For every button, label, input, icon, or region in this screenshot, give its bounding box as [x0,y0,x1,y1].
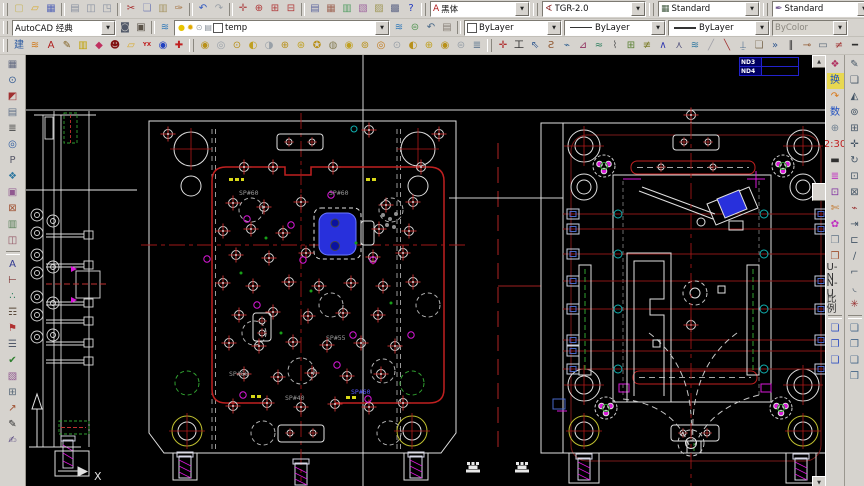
nd-coordinate-table: ND3 ND4 [739,57,799,76]
layer-on-icon[interactable]: ● [178,23,185,32]
nd4-label: ND4 [740,67,761,75]
dropdown-arrow-icon [833,21,847,35]
break-icon[interactable]: ⊏ [846,233,863,249]
color-control-combo[interactable]: ByLayer [464,20,562,36]
dropdown-arrow-icon[interactable] [857,2,864,16]
line-tool-6[interactable]: ⊿ [575,38,591,53]
ucs-icon: X [29,394,102,483]
lt-cells[interactable]: ▤ [4,105,21,121]
dropdown-arrow-icon[interactable] [375,21,389,35]
toolbar-grip[interactable] [533,3,538,16]
rt-swap[interactable]: 换 [827,73,844,89]
yellow-marks [229,178,376,399]
lt-check[interactable]: ✔ [4,353,21,369]
datum-symbol [515,462,529,473]
lt-split[interactable]: ◫ [4,233,21,249]
draworder-under-icon[interactable]: ❒ [846,369,863,385]
round-tool-5[interactable]: ◑ [261,38,277,53]
toolbar-grip[interactable] [421,3,426,16]
fillet2-icon[interactable]: ◟ [846,281,863,297]
rt-stack-1[interactable]: ❏ [827,321,844,337]
custom-mid-toolbar: ◉◎⊙◐◑⊕⊛✪◍◉⊚◎⊙◐⊕◉⊜≣ [197,38,485,53]
dim-style-value: TGR-2.0 [555,4,629,14]
dropdown-arrow-icon[interactable] [745,2,759,16]
separator [117,3,121,16]
round-tool-9[interactable]: ◍ [325,38,341,53]
color-swatch-icon [467,23,477,33]
rt-stack-2[interactable]: ❐ [827,337,844,353]
tool-palettes-icon[interactable]: ▥ [339,2,355,17]
tool-face[interactable]: ☻ [107,38,123,53]
quickcalc-icon[interactable]: ▩ [387,2,403,17]
line-tool-15[interactable]: ╲ [719,38,735,53]
line-tool-1[interactable]: ✛ [495,38,511,53]
move-icon[interactable]: ✛ [846,137,863,153]
scroll-down-icon[interactable]: ▼ [812,476,825,486]
round-tool-1[interactable]: ◉ [197,38,213,53]
left-section-view [26,111,137,468]
svg-text:SP#55: SP#55 [326,334,346,342]
separator [301,3,305,16]
lt-arrow[interactable]: ↗ [4,401,21,417]
line-tool-3[interactable]: ⇖ [527,38,543,53]
draworder-above-icon[interactable]: ❑ [846,353,863,369]
round-tool-16[interactable]: ◉ [437,38,453,53]
layer-name-value: temp [225,23,373,33]
layer-color-swatch [213,23,223,33]
autocad-window: ▢▱▦▤◫◳✂❏▥✑↶↷✛⊕⊞⊟▤▦▥▧▨▩? A 黑体 ∢ TGR-2.0 ▦… [0,0,864,486]
toolbar-grip[interactable] [649,3,654,16]
plot-icon[interactable]: ▤ [67,2,83,17]
line-tool-14[interactable]: ╱ [703,38,719,53]
layer-lock-icon[interactable]: ⊙ [196,23,203,32]
layer-previous-icon[interactable]: ↶ [423,20,439,35]
line-tool-23[interactable]: ━ [847,38,863,53]
chamfer-icon[interactable]: ∕ [846,249,863,265]
custom-left-toolbar: 建≋A✎▥◆☻▱YX◉✚ [11,38,187,53]
custom-toolbar-row: 建≋A✎▥◆☻▱YX◉✚ ◉◎⊙◐◑⊕⊛✪◍◉⊚◎⊙◐⊕◉⊜≣ ✛工⇖Ƨ⌁⊿≈⌇… [0,37,864,55]
rt-boxdot[interactable]: ⊡ [827,185,844,201]
tie-bar-fittings [567,209,825,374]
stretch-icon[interactable]: ⊠ [846,185,863,201]
separator [6,251,20,255]
lt-p[interactable]: P [4,153,21,169]
tool-help2[interactable]: ✚ [171,38,187,53]
datum-symbol [466,462,480,473]
pan-icon[interactable]: ✛ [235,2,251,17]
layer-thaw-icon[interactable]: ✹ [187,23,194,32]
color-control-value: ByLayer [479,23,545,33]
rt-scale-230[interactable]: 2:30 [827,137,844,153]
water-lines [563,214,825,369]
dropdown-arrow-icon[interactable] [755,21,769,35]
svg-text:SP#60: SP#60 [351,388,371,396]
tool-text[interactable]: A [43,38,59,53]
toolbar-grip[interactable] [3,39,8,52]
layer-combo[interactable]: ●✹⊙▤ temp [174,20,390,36]
line-tool-12[interactable]: ⋏ [671,38,687,53]
line-tool-2[interactable]: 工 [511,38,527,53]
lt-dots[interactable]: ∴ [4,289,21,305]
lt-flag[interactable]: ⚑ [4,321,21,337]
workspace-settings-icon[interactable]: ◙ [117,20,133,35]
paste-icon[interactable]: ▥ [155,2,171,17]
svg-text:SP#40: SP#40 [285,394,305,402]
lt-trigram[interactable]: ☶ [4,305,21,321]
line-tool-9[interactable]: ⊞ [623,38,639,53]
offset-icon[interactable]: ⊚ [846,105,863,121]
separator [189,3,193,16]
layer-state-icons: ●✹⊙▤ [177,23,213,32]
round-tool-4[interactable]: ◐ [245,38,261,53]
fillet-icon[interactable]: ⌐ [846,265,863,281]
tool-about[interactable]: ◉ [155,38,171,53]
round-tool-2[interactable]: ◎ [213,38,229,53]
lt-boxgrid[interactable]: ▣ [4,185,21,201]
round-tool-7[interactable]: ⊛ [293,38,309,53]
lt-plus[interactable]: ⊞ [4,385,21,401]
toolbar-grip[interactable] [763,3,768,16]
round-tool-6[interactable]: ⊕ [277,38,293,53]
lt-grid[interactable]: ▦ [4,57,21,73]
linetype-control-combo[interactable]: ByLayer [564,20,666,36]
rt-target[interactable]: ⊕ [827,121,844,137]
standard-toolbar: ▢▱▦▤◫◳✂❏▥✑↶↷✛⊕⊞⊟▤▦▥▧▨▩? [11,2,419,17]
round-tool-13[interactable]: ⊙ [389,38,405,53]
round-tool-11[interactable]: ⊚ [357,38,373,53]
scrollbar-thumb[interactable] [812,183,825,201]
qnew-icon[interactable]: ▢ [11,2,27,17]
lineweight-control-value: ByLayer [699,23,753,33]
section-centerline [449,143,563,473]
blue-insert [314,208,361,259]
draworder-front-icon[interactable]: ❏ [846,321,863,337]
tool-folder[interactable]: ▱ [123,38,139,53]
toolbar-grip[interactable] [487,39,492,52]
lt-text[interactable]: A [4,257,21,273]
text-style-combo[interactable]: A 黑体 [430,1,530,17]
separator [229,3,233,16]
lt-zoom[interactable]: ⊙ [4,73,21,89]
lt-sign[interactable]: ✍ [4,433,21,449]
zoom-window-icon[interactable]: ⊞ [267,2,283,17]
line-tool-19[interactable]: ∥ [783,38,799,53]
lt-lines[interactable]: ☰ [4,337,21,353]
x-axis-label: X [94,470,102,483]
svg-text:SP#60: SP#60 [229,370,249,378]
custom-lines-toolbar: ✛工⇖Ƨ⌁⊿≈⌇⊞≢∧⋏≋╱╲⍊❏»∥⊸▭≠━╪ [495,38,864,53]
text-style-value: 黑体 [441,3,513,15]
explode-icon[interactable]: ✳ [846,297,863,313]
line-tool-8[interactable]: ⌇ [607,38,623,53]
drawing-canvas[interactable]: X [26,55,825,486]
dropdown-arrow-icon[interactable] [547,21,561,35]
dropdown-arrow-icon[interactable] [631,2,645,16]
nd3-cell [761,58,798,66]
rotate-icon[interactable]: ↻ [846,153,863,169]
cut-icon[interactable]: ✂ [123,2,139,17]
svg-text:SP#60: SP#60 [239,189,259,197]
line-tool-16[interactable]: ⍊ [735,38,751,53]
lineweight-sample-icon [674,27,696,29]
lt-bars[interactable]: ▥ [4,217,21,233]
draworder-back-icon[interactable]: ❐ [846,337,863,353]
tool-jian[interactable]: 建 [11,38,27,53]
mleader-style-icon: ✒ [775,4,783,14]
crosshair-cursor[interactable] [26,55,825,486]
undo-icon[interactable]: ↶ [195,2,211,17]
separator [457,21,461,34]
table-style-value: Standard [672,4,743,14]
properties-icon[interactable]: ▤ [307,2,323,17]
line-tool-22[interactable]: ≠ [831,38,847,53]
designcenter-icon[interactable]: ▦ [323,2,339,17]
scroll-up-icon[interactable]: ▲ [812,55,825,68]
round-tool-15[interactable]: ⊕ [421,38,437,53]
line-tool-4[interactable]: Ƨ [543,38,559,53]
lt-hatch[interactable]: ▧ [4,369,21,385]
rt-snip[interactable]: ✄ [827,201,844,217]
round-tool-8[interactable]: ✪ [309,38,325,53]
layer-tools: ≋⊜↶▤ [391,20,455,35]
trim-icon[interactable]: ⌁ [846,201,863,217]
separator [61,3,65,16]
round-tool-3[interactable]: ⊙ [229,38,245,53]
linetype-sample-icon [570,27,592,28]
tool-diamond[interactable]: ◆ [91,38,107,53]
bolt-pattern [216,195,421,415]
tool-yx[interactable]: YX [139,38,155,53]
rt-curve-arrow[interactable]: ↷ [827,89,844,105]
linetype-control-value: ByLayer [595,23,649,33]
erase-icon[interactable]: ✎ [846,57,863,73]
canvas-vertical-scrollbar[interactable]: ▲ ▼ [812,55,825,486]
center-plate-view: SP#60 SP#60 SP#60 SP#55 SP#40 SP#60 [141,113,467,485]
dropdown-arrow-icon[interactable] [651,21,665,35]
separator [151,21,155,34]
rt-mark[interactable]: ❖ [827,57,844,73]
toolbar-grip[interactable] [189,39,194,52]
lt-ring[interactable]: ◎ [4,137,21,153]
help-icon[interactable]: ? [403,2,419,17]
copy-icon[interactable]: ❏ [139,2,155,17]
lt-red-block[interactable]: ◩ [4,89,21,105]
dropdown-arrow-icon[interactable] [101,21,115,35]
lineweight-control-combo[interactable]: ByLayer [668,20,770,36]
scale-icon[interactable]: ⊡ [846,169,863,185]
line-tool-13[interactable]: ≋ [687,38,703,53]
line-tool-18[interactable]: » [767,38,783,53]
mirror-icon[interactable]: ◭ [846,89,863,105]
line-tool-11[interactable]: ∧ [655,38,671,53]
round-tool-17[interactable]: ⊜ [453,38,469,53]
svg-text:SP#60: SP#60 [329,189,349,197]
plotstyle-control-combo: ByColor [772,20,848,36]
nd3-label: ND3 [740,58,761,66]
rt-scale-cn[interactable]: 比例 [827,297,844,313]
save-icon[interactable]: ▦ [43,2,59,17]
redo-icon[interactable]: ↷ [211,2,227,17]
copy-object-icon[interactable]: ❏ [846,73,863,89]
plotstyle-control-value: ByColor [775,23,831,33]
plot-preview-icon[interactable]: ◫ [83,2,99,17]
line-tool-17[interactable]: ❏ [751,38,767,53]
round-tool-14[interactable]: ◐ [405,38,421,53]
layer-properties-icon[interactable]: ≋ [391,20,407,35]
mleader-style-value: Standard [785,4,855,14]
layer-properties-manager-icon[interactable]: ≋ [157,20,173,35]
table-style-combo[interactable]: ▦ Standard [658,1,760,17]
standard-toolbar-row: ▢▱▦▤◫◳✂❏▥✑↶↷✛⊕⊞⊟▤▦▥▧▨▩? A 黑体 ∢ TGR-2.0 ▦… [0,0,864,19]
round-tool-12[interactable]: ◎ [373,38,389,53]
lt-layers[interactable]: ❖ [4,169,21,185]
make-layer-current-icon[interactable]: ⊜ [407,20,423,35]
right-plate-view [541,108,825,486]
layer-states-icon[interactable]: ▤ [439,20,455,35]
line-tool-7[interactable]: ≈ [591,38,607,53]
line-tool-20[interactable]: ⊸ [799,38,815,53]
sheetset-manager-icon[interactable]: ▧ [355,2,371,17]
toolbar-grip[interactable] [3,21,8,34]
line-tool-21[interactable]: ▭ [815,38,831,53]
layers-toolbar-row: AutoCAD 经典 ◙▣ ≋ ●✹⊙▤ temp ≋⊜↶▤ ByLayer B… [0,19,864,37]
nd4-cell [761,67,798,75]
text-style-icon: A [433,4,439,14]
dropdown-arrow-icon[interactable] [515,2,529,16]
line-tool-10[interactable]: ≢ [639,38,655,53]
lt-xbox[interactable]: ⊠ [4,201,21,217]
toolbar-grip[interactable] [3,3,8,16]
left-toolbar: ▦⊙◩▤≣◎P❖▣⊠▥◫A⊢∴☶⚑☰✔▧⊞↗✎✍ [0,55,26,486]
rt-stack-3[interactable]: ❑ [827,353,844,369]
tool-waves[interactable]: ≋ [27,38,43,53]
main-area: ▦⊙◩▤≣◎P❖▣⊠▥◫A⊢∴☶⚑☰✔▧⊞↗✎✍ [0,55,864,486]
line-tool-5[interactable]: ⌁ [559,38,575,53]
mleader-style-combo[interactable]: ✒ Standard [772,1,864,17]
open-icon[interactable]: ▱ [27,2,43,17]
match-properties-icon[interactable]: ✑ [171,2,187,17]
tool-pencil[interactable]: ✎ [59,38,75,53]
array-icon[interactable]: ⊞ [846,121,863,137]
zoom-previous-icon[interactable]: ⊟ [283,2,299,17]
separator [848,315,862,319]
workspace-combo[interactable]: AutoCAD 经典 [12,20,116,36]
cad-drawing: X [26,55,825,486]
markup-set-manager-icon[interactable]: ▨ [371,2,387,17]
workspace-save-icon[interactable]: ▣ [133,20,149,35]
table-style-icon: ▦ [661,4,670,14]
tool-colorbars[interactable]: ▥ [75,38,91,53]
right-custom-toolbar: ❖换↷数⊕2:30▬≣⊡✄✿❒❒U-NN-U比例❏❐❑ [825,55,844,486]
rt-count[interactable]: 数 [827,105,844,121]
workspace-value: AutoCAD 经典 [15,22,99,34]
separator [828,315,842,319]
round-tool-18[interactable]: ≣ [469,38,485,53]
lt-dim[interactable]: ⊢ [4,273,21,289]
rt-copyshape[interactable]: ❒ [827,233,844,249]
slide-unit [639,187,758,230]
lt-pen[interactable]: ✎ [4,417,21,433]
modify-toolbar: ✎❏◭⊚⊞✛↻⊡⊠⌁⇥⊏∕⌐◟✳❏❐❑❒ [844,55,864,486]
rt-flower[interactable]: ✿ [827,217,844,233]
rt-blackbar[interactable]: ▬ [827,153,844,169]
publish-icon[interactable]: ◳ [99,2,115,17]
round-tool-10[interactable]: ◉ [341,38,357,53]
extend-icon[interactable]: ⇥ [846,217,863,233]
dim-style-icon: ∢ [545,4,553,14]
rt-colorlines[interactable]: ≣ [827,169,844,185]
lt-list[interactable]: ≣ [4,121,21,137]
workspace-tools: ◙▣ [117,20,149,35]
dim-style-combo[interactable]: ∢ TGR-2.0 [542,1,646,17]
gray-dot-cluster [381,212,398,229]
layer-plot-icon[interactable]: ▤ [204,23,212,32]
zoom-realtime-icon[interactable]: ⊕ [251,2,267,17]
